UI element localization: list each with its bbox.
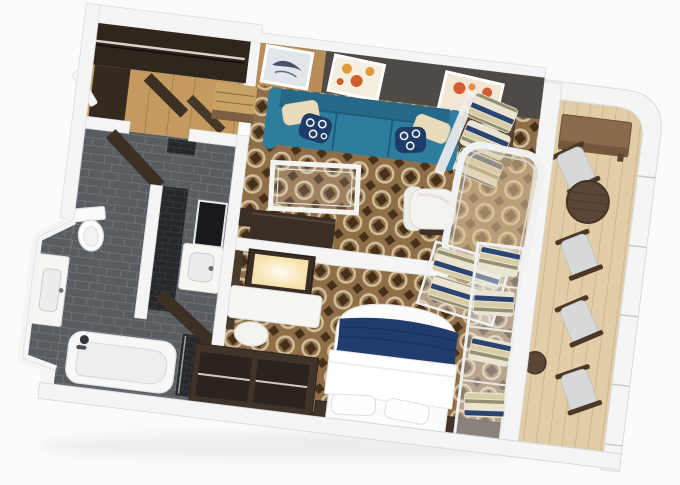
coffee-table [270, 162, 358, 212]
linen-stack [464, 392, 505, 417]
linen-stack [473, 290, 514, 316]
artwork-bird [261, 46, 313, 89]
bathroom-mirror [194, 201, 227, 248]
bed [322, 298, 464, 433]
drawer-cabinet [211, 82, 257, 124]
balcony-shelf-leg [617, 153, 624, 162]
cabinet-top [212, 82, 257, 115]
polkadot-pillow [395, 127, 426, 154]
entry-closet [88, 65, 130, 123]
artwork-canvas [261, 46, 313, 89]
glass-top [270, 162, 358, 212]
floor-plan-rendering [0, 0, 680, 485]
floor-plan-stage [0, 0, 680, 485]
bed-pillow [331, 394, 376, 416]
